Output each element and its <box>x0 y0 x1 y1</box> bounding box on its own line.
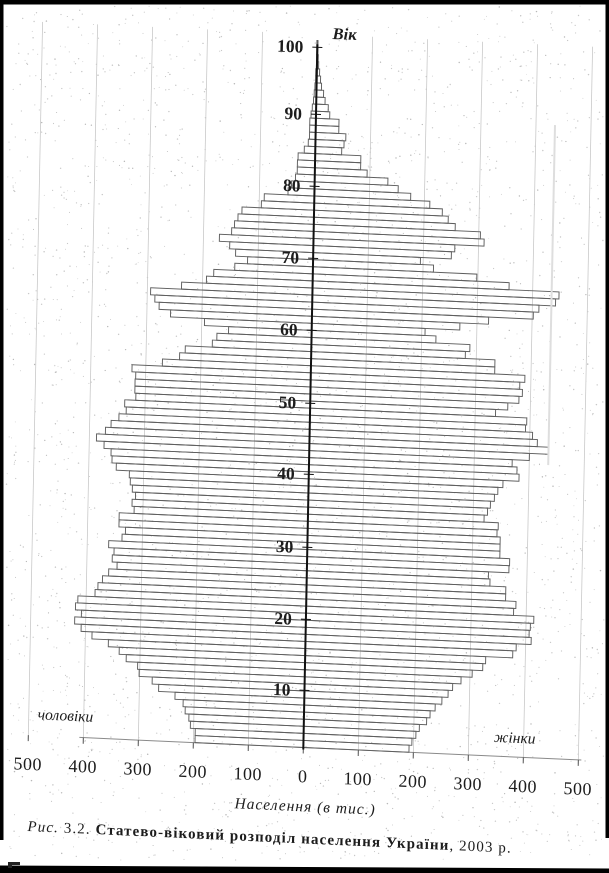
svg-text:50: 50 <box>279 392 297 413</box>
svg-text:500: 500 <box>563 778 592 799</box>
svg-text:100: 100 <box>277 36 304 57</box>
svg-text:70: 70 <box>281 247 299 268</box>
svg-text:10: 10 <box>273 679 291 700</box>
svg-text:200: 200 <box>398 771 427 792</box>
svg-text:чоловіки: чоловіки <box>38 706 94 725</box>
svg-text:90: 90 <box>284 103 302 124</box>
svg-text:100: 100 <box>343 768 372 789</box>
svg-text:60: 60 <box>280 319 298 340</box>
svg-text:30: 30 <box>276 536 294 557</box>
svg-text:Вік: Вік <box>331 24 357 44</box>
svg-text:300: 300 <box>453 773 482 794</box>
svg-text:40: 40 <box>277 463 295 484</box>
svg-text:80: 80 <box>283 175 301 196</box>
svg-text:20: 20 <box>274 608 292 629</box>
svg-text:300: 300 <box>123 758 152 779</box>
svg-text:400: 400 <box>508 776 537 797</box>
svg-text:жінки: жінки <box>494 729 536 748</box>
svg-text:200: 200 <box>178 761 207 782</box>
svg-text:400: 400 <box>68 756 97 777</box>
svg-text:0: 0 <box>298 766 308 786</box>
svg-text:500: 500 <box>13 753 42 774</box>
svg-text:100: 100 <box>233 763 262 784</box>
